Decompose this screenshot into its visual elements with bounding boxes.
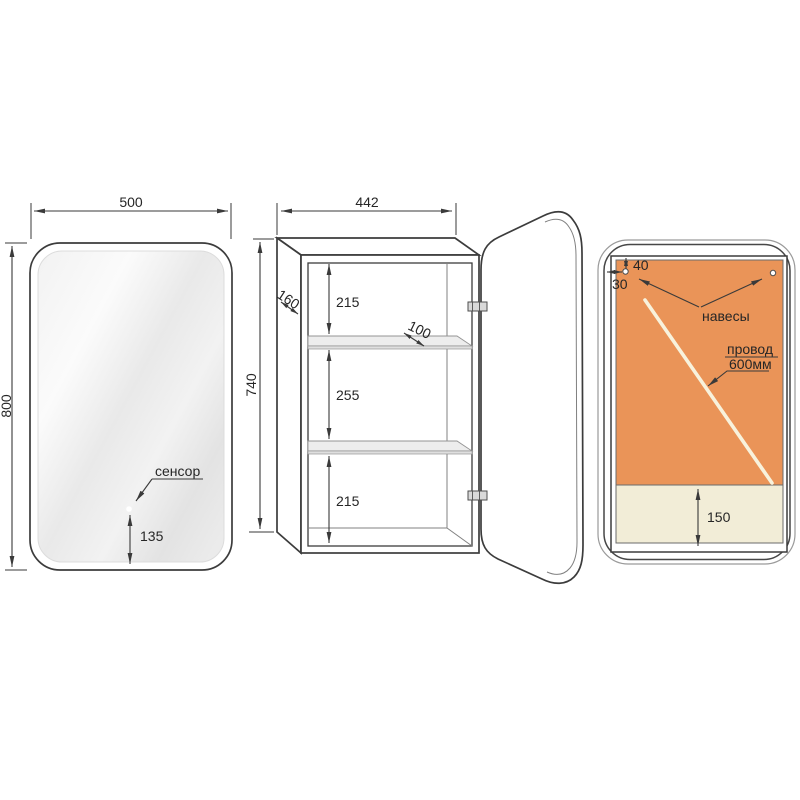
hanger-top-offset-label: 40 [633, 257, 649, 273]
cabinet-width-label: 442 [355, 194, 379, 210]
wire-label-line1: провод [727, 341, 773, 357]
wire-label-line2: 600мм [729, 356, 772, 372]
shelf-bottom [308, 441, 472, 451]
shelf-top [308, 336, 472, 346]
shelf-bottom-front-edge [308, 451, 472, 454]
hanger-left [623, 269, 628, 274]
width-dimension-label: 500 [119, 194, 143, 210]
cabinet-top-face [277, 238, 479, 255]
middle-gap-label: 255 [336, 387, 360, 403]
hanger-side-offset-label: 30 [612, 276, 628, 292]
bottom-zone-label: 150 [707, 509, 731, 525]
top-gap-label: 215 [336, 294, 360, 310]
technical-drawing-page: 500 800 сенсор 135 442 740 [0, 0, 800, 800]
open-mirror-door [481, 212, 583, 583]
back-panel [616, 260, 783, 485]
back-view: 40 30 навесы провод 600мм 150 [598, 240, 795, 564]
cabinet-height-label: 740 [243, 373, 259, 397]
bottom-gap-label: 215 [336, 493, 360, 509]
hangers-label: навесы [702, 308, 750, 324]
mirror-cabinet-drawing: 500 800 сенсор 135 442 740 [0, 0, 800, 800]
sensor-label: сенсор [155, 463, 200, 479]
mirror-glass [38, 251, 224, 562]
shelf-top-front-edge [308, 346, 472, 349]
cabinet-side-face [277, 238, 301, 553]
open-view: 442 740 215 255 215 100 160 [243, 194, 583, 583]
sensor-dot [126, 506, 132, 512]
bottom-panel [616, 485, 783, 543]
hanger-right [770, 270, 775, 275]
height-dimension-label: 800 [0, 394, 14, 418]
front-view: 500 800 сенсор 135 [0, 194, 232, 570]
sensor-height-label: 135 [140, 528, 164, 544]
hinge-top [468, 302, 487, 311]
hinge-bottom [468, 491, 487, 500]
